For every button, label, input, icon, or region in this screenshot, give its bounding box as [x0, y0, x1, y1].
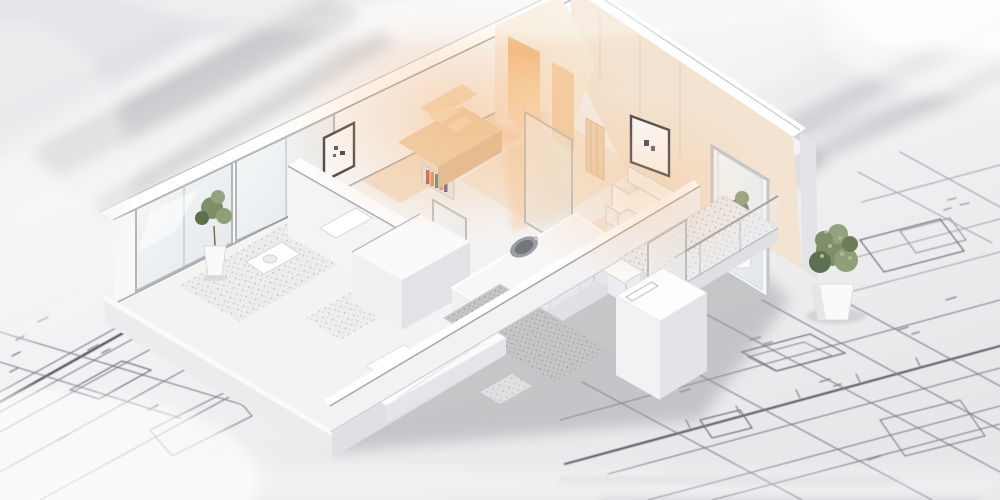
warm-glow-dining	[510, 95, 770, 285]
rendered-photo	[0, 0, 1000, 500]
